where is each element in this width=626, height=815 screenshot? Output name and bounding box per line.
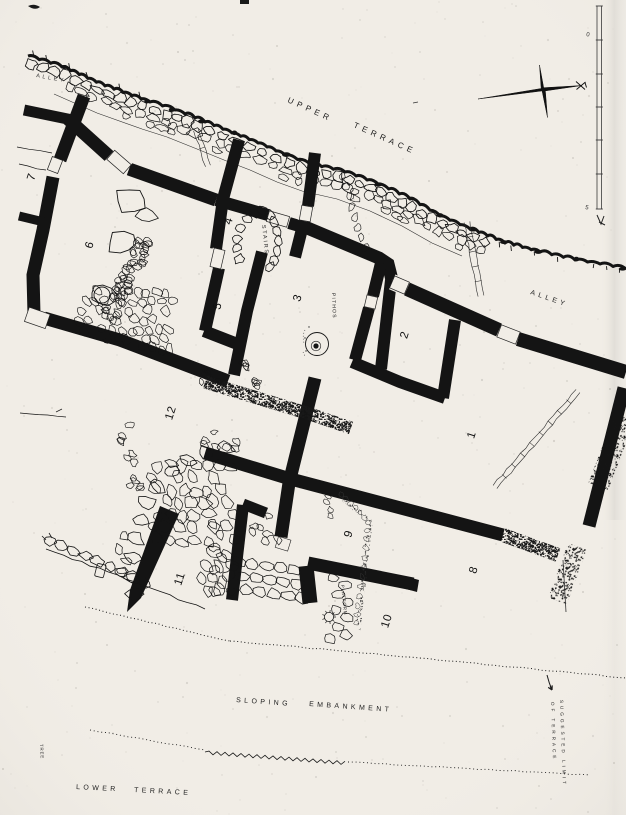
svg-text:PITHOS: PITHOS: [330, 293, 337, 319]
svg-text:TREE: TREE: [39, 744, 45, 759]
